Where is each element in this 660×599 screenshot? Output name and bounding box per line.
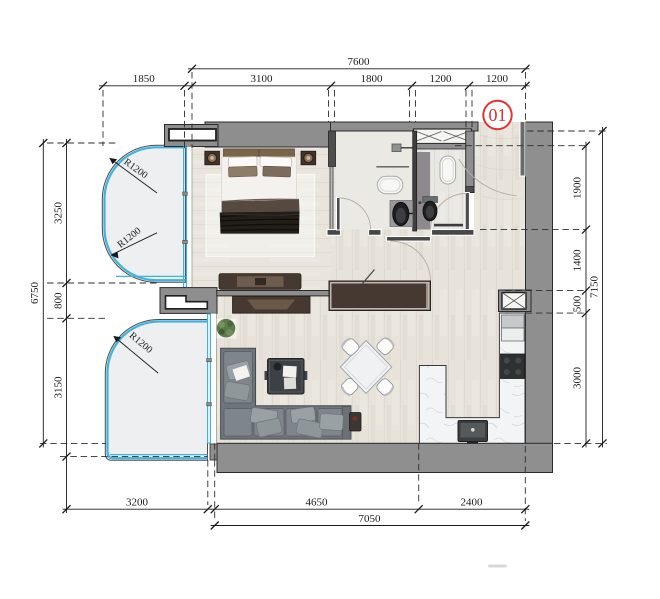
svg-text:1850: 1850 [133, 73, 156, 85]
svg-text:1800: 1800 [361, 73, 384, 85]
svg-text:500: 500 [572, 295, 584, 312]
svg-text:1200: 1200 [486, 73, 509, 85]
svg-text:01: 01 [489, 105, 507, 125]
svg-text:3100: 3100 [251, 73, 274, 85]
svg-text:3150: 3150 [53, 376, 65, 399]
svg-text:3250: 3250 [53, 202, 65, 225]
svg-text:7050: 7050 [359, 513, 382, 525]
svg-text:1900: 1900 [572, 177, 584, 200]
svg-text:800: 800 [53, 292, 65, 309]
svg-text:3000: 3000 [572, 367, 584, 390]
svg-text:1200: 1200 [430, 73, 453, 85]
svg-text:7150: 7150 [589, 276, 601, 299]
svg-text:1400: 1400 [572, 249, 584, 272]
svg-text:6750: 6750 [29, 282, 41, 305]
svg-text:7600: 7600 [348, 56, 371, 68]
svg-text:2400: 2400 [461, 497, 484, 509]
svg-text:3200: 3200 [126, 497, 149, 509]
svg-text:4650: 4650 [306, 497, 329, 509]
